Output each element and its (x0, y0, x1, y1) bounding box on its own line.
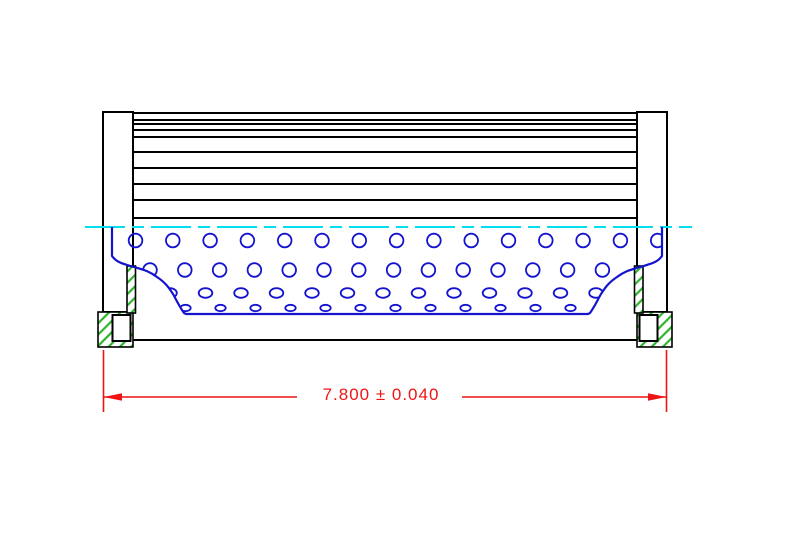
perforation-hole (320, 305, 330, 311)
left-end-cap (98, 112, 136, 347)
perforation-hole (355, 305, 365, 311)
perforation-hole (561, 263, 575, 277)
perforation-hole (203, 234, 217, 248)
perforation-hole (248, 263, 262, 277)
perforation-hole (353, 234, 367, 248)
perforation-hole (596, 263, 610, 277)
perforation-hole (234, 288, 248, 298)
right-cap-foot-bore (640, 315, 658, 341)
perforation-hole (460, 305, 470, 311)
left-cap-seal-strip (127, 266, 136, 313)
perforation-hole (270, 288, 284, 298)
perforation-hole (285, 305, 295, 311)
center-tube (112, 227, 665, 314)
drawing-canvas: 7.800 ± 0.040 (0, 0, 789, 546)
perforation-hole (178, 263, 192, 277)
perforation-hole (213, 263, 227, 277)
perforation-hole (530, 305, 540, 311)
perforation-hole (341, 288, 355, 298)
perforation-hole (305, 288, 319, 298)
perforation-hole (491, 263, 505, 277)
perforation-hole (518, 288, 532, 298)
filter-element-technical-drawing (0, 0, 789, 546)
perforation-hole (502, 234, 516, 248)
perforation-hole (199, 288, 213, 298)
perforation-hole (390, 305, 400, 311)
perforation-hole (250, 305, 260, 311)
perforation-hole (282, 263, 296, 277)
perforation-hole (241, 234, 255, 248)
perforation-hole (526, 263, 540, 277)
perforation-hole (539, 234, 553, 248)
perforation-hole (412, 288, 426, 298)
perforation-holes (129, 234, 665, 311)
perforation-hole (427, 234, 441, 248)
filter-media-block (133, 113, 637, 218)
perforation-hole (278, 234, 292, 248)
perforation-hole (576, 234, 590, 248)
perforation-hole (317, 263, 331, 277)
right-end-cap (635, 112, 673, 347)
perforation-hole (464, 234, 478, 248)
perforation-hole (315, 234, 329, 248)
dimension-text: 7.800 ± 0.040 (281, 385, 481, 405)
perforation-hole (376, 288, 390, 298)
perforation-hole (554, 288, 568, 298)
perforation-hole (352, 263, 366, 277)
left-cap-foot-bore (113, 315, 131, 341)
perforation-hole (456, 263, 470, 277)
left-arrowhead-icon (104, 393, 123, 401)
perforation-hole (390, 234, 404, 248)
perforation-hole (447, 288, 461, 298)
perforation-hole (422, 263, 436, 277)
perforation-hole (166, 234, 180, 248)
perforation-hole (387, 263, 401, 277)
perforation-hole (565, 305, 575, 311)
perforation-hole (614, 234, 628, 248)
perforation-hole (425, 305, 435, 311)
perforation-hole (495, 305, 505, 311)
right-arrowhead-icon (648, 393, 667, 401)
media-outline (133, 113, 637, 218)
right-cap-seal-strip (635, 266, 644, 313)
perforation-hole (483, 288, 497, 298)
perforation-hole (215, 305, 225, 311)
